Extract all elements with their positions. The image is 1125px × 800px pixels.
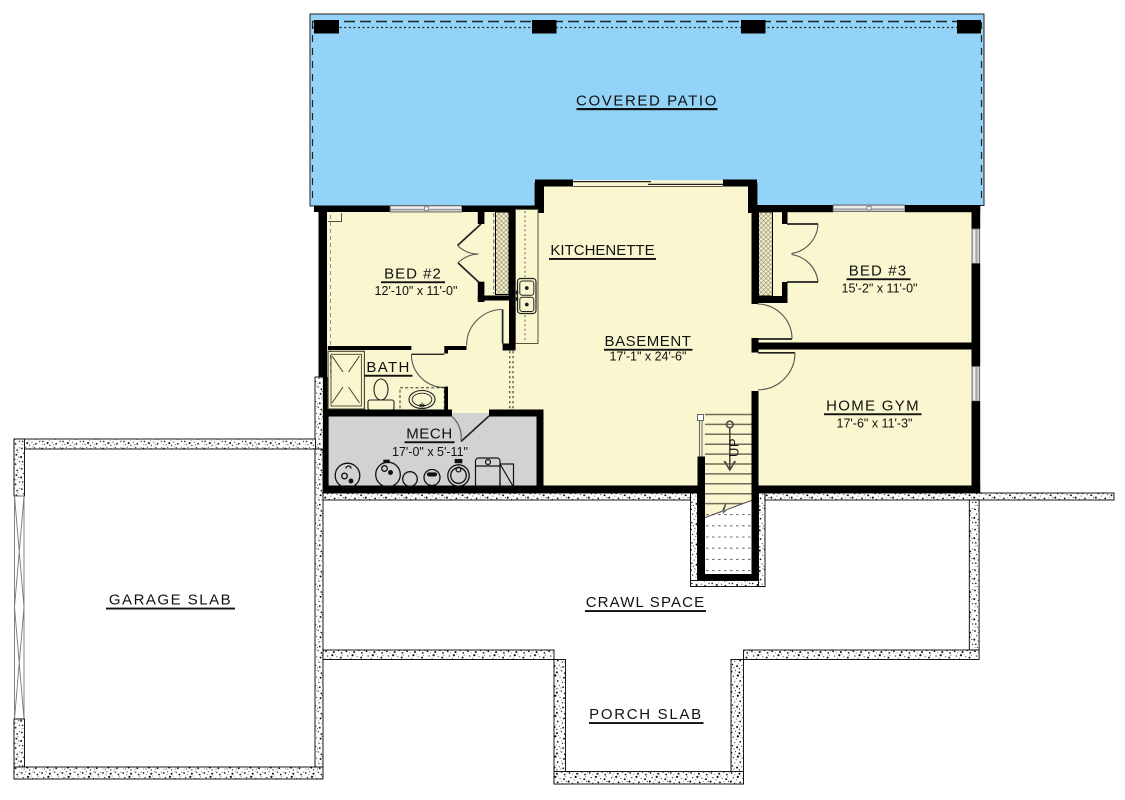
svg-text:MECH: MECH: [406, 426, 453, 443]
svg-text:COVERED PATIO: COVERED PATIO: [576, 93, 718, 110]
svg-text:GARAGE SLAB: GARAGE SLAB: [109, 592, 232, 609]
svg-text:17'-6" x 11'-3": 17'-6" x 11'-3": [837, 417, 913, 431]
svg-text:BED #2: BED #2: [384, 266, 442, 283]
svg-text:KITCHENETTE: KITCHENETTE: [550, 242, 654, 259]
svg-text:BASEMENT: BASEMENT: [605, 333, 692, 350]
svg-text:15'-2" x 11'-0": 15'-2" x 11'-0": [842, 282, 918, 296]
svg-text:12'-10" x 11'-0": 12'-10" x 11'-0": [375, 284, 458, 298]
svg-text:17'-0" x 5'-11": 17'-0" x 5'-11": [392, 445, 468, 459]
svg-text:CRAWL SPACE: CRAWL SPACE: [586, 594, 706, 611]
svg-text:17'-1" x 24'-6": 17'-1" x 24'-6": [610, 350, 687, 364]
svg-text:HOME GYM: HOME GYM: [826, 398, 920, 415]
svg-text:UP: UP: [727, 438, 742, 457]
svg-text:BED #3: BED #3: [849, 263, 908, 280]
svg-text:BATH: BATH: [366, 359, 410, 376]
svg-text:PORCH SLAB: PORCH SLAB: [589, 706, 703, 723]
